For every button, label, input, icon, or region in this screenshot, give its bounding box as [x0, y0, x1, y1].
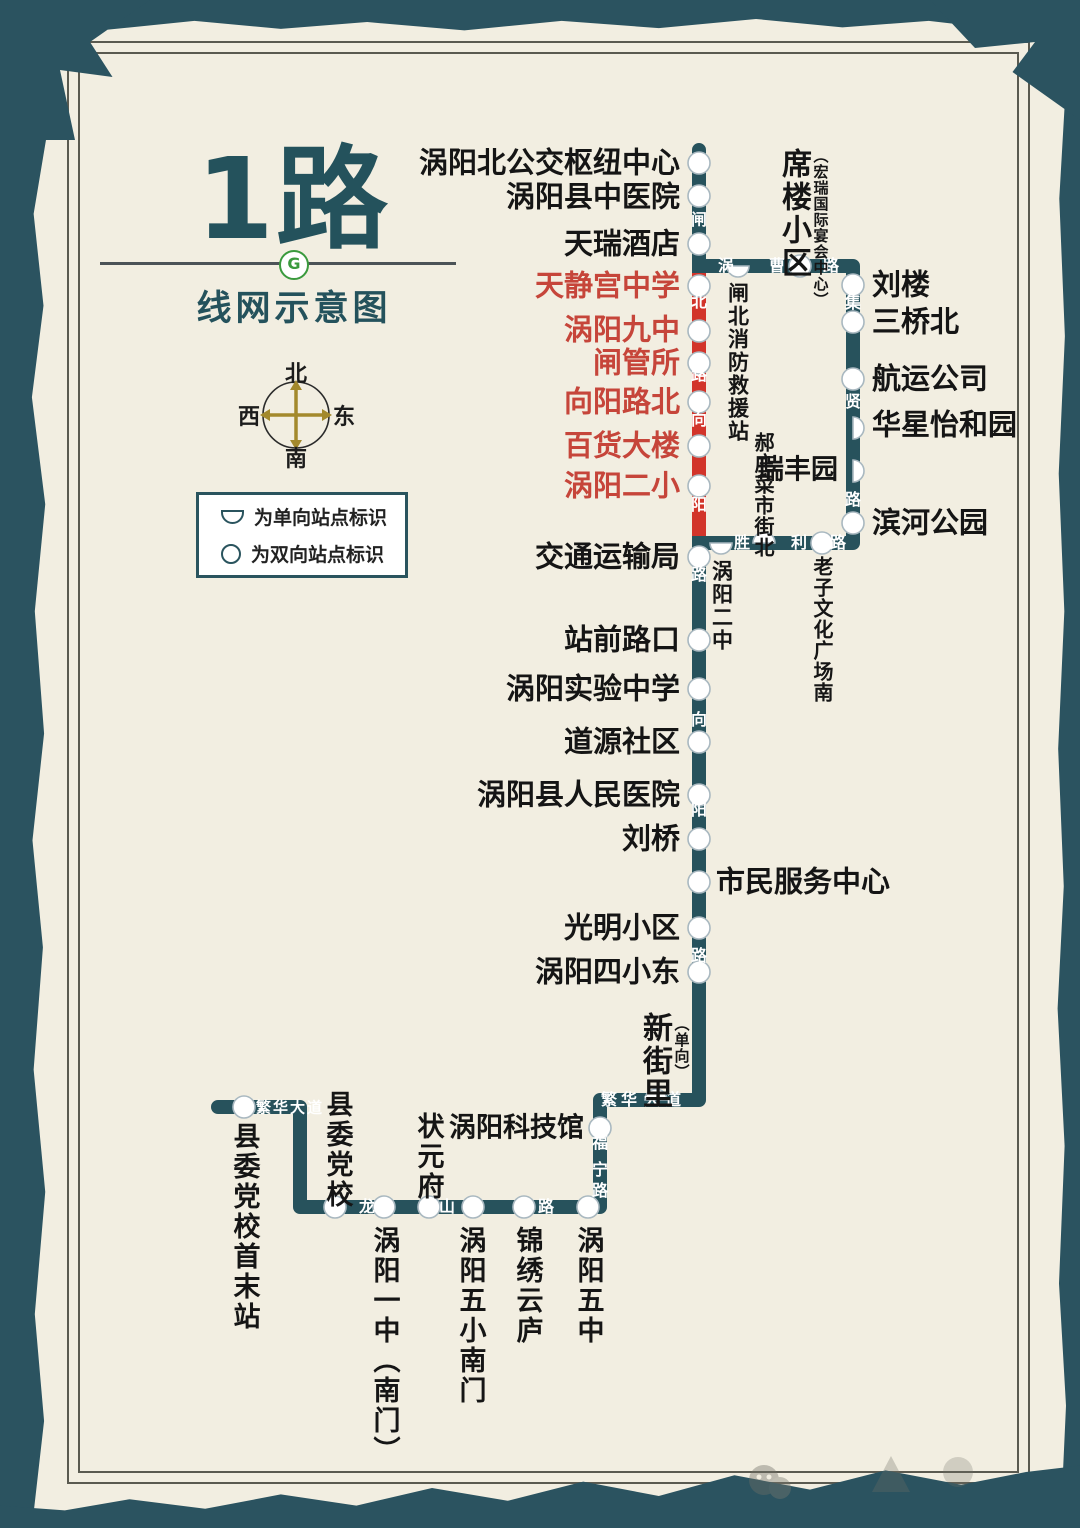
station-label-tianjinggong: 天静宫中学	[535, 272, 680, 301]
road-char: 胜	[734, 535, 750, 551]
road-char: 闸	[691, 212, 707, 228]
station-marker-shiyanzhongxue	[688, 678, 710, 700]
station-label-sixiaodong: 涡阳四小东	[535, 958, 680, 987]
road-char: 集	[845, 295, 861, 311]
station-label-baihuodalou: 百货大楼	[564, 432, 680, 461]
road-label-fanhua-terminus: 繁华大道	[256, 1097, 324, 1118]
watermark-shape-icon	[866, 1452, 916, 1496]
road-char: 宁	[592, 1162, 608, 1178]
road-char: 阳	[691, 802, 707, 818]
station-marker-shiminzhongxin	[688, 871, 710, 893]
station-label-zhaguansuo: 闸管所	[593, 349, 680, 378]
station-marker-hangyungongsi	[842, 368, 864, 390]
road-char: 路	[691, 567, 707, 583]
station-label-xilouxiaoqu: 席楼小区	[778, 148, 808, 280]
road-char: 向	[691, 712, 707, 728]
station-label-xianweidangxiao: 县委党校	[324, 1090, 351, 1210]
road-char: 路	[691, 948, 707, 964]
station-label-haozhuang: 郝庄菜市街北	[753, 432, 773, 558]
wechat-watermark-icon	[742, 1460, 802, 1506]
road-char: 路	[592, 1183, 608, 1199]
station-marker-erzhong	[710, 543, 732, 554]
station-label-zhongyiyuan: 涡阳县中医院	[506, 183, 680, 212]
station-marker-liuqiao	[688, 828, 710, 850]
road-char: 龙	[359, 1199, 375, 1215]
station-marker-zhanqianlukou	[688, 629, 710, 651]
station-label-liulou: 刘楼	[872, 271, 930, 300]
station-label-jiaotongju: 交通运输局	[535, 543, 680, 572]
station-label-shiyanzhongxue: 涡阳实验中学	[506, 675, 680, 704]
station-label-erzhong: 涡阳二中	[711, 560, 732, 652]
station-label-hub: 涡阳北公交枢纽中心	[419, 149, 680, 178]
road-char: 北	[691, 294, 707, 310]
station-marker-jinxiuyunlu	[513, 1196, 535, 1218]
road-char: 向	[691, 412, 707, 428]
station-marker-guangmingxiaoqu	[688, 917, 710, 939]
station-label-kejiguan: 涡阳科技馆	[449, 1115, 584, 1142]
station-label-xiangyanglubei: 向阳路北	[564, 388, 680, 417]
station-label-shoumozhan: 县委党校首末站	[231, 1122, 258, 1332]
station-label-jinxiuyunlu: 锦绣云庐	[514, 1226, 541, 1346]
station-label-xinjieli: 新街里	[639, 1012, 669, 1111]
road-char: 路	[830, 535, 846, 551]
station-label-renminyiyuan: 涡阳县人民医院	[477, 781, 680, 810]
station-label-shiminzhongxin: 市民服务中心	[716, 868, 890, 897]
station-label-tianrui: 天瑞酒店	[564, 230, 680, 259]
station-marker-ruifengyuan	[853, 460, 864, 482]
station-marker-yizhong	[373, 1196, 395, 1218]
road-char: 福	[592, 1135, 608, 1151]
station-label-binhegongyuan: 滨河公园	[872, 509, 988, 538]
station-label-zhanqianlukou: 站前路口	[564, 626, 680, 655]
watermark-blob-icon	[936, 1450, 980, 1494]
road-char: 涡	[718, 258, 734, 274]
poster: 1路 G 线网示意图 北 南 西 东 为单向站点标识 为双向站点标识	[0, 0, 1080, 1528]
station-label-daoyuanshequ: 道源社区	[564, 728, 680, 757]
station-marker-hub	[688, 152, 710, 174]
station-label-hangyungongsi: 航运公司	[872, 365, 988, 394]
station-label-xiaofangzhan: 闸北消防救援站	[727, 282, 748, 443]
station-label-jiuzhong: 涡阳九中	[564, 316, 680, 345]
station-label-wuxiaonanmen: 涡阳五小南门	[457, 1226, 484, 1406]
station-label-zhuangyuanfu: 状元府	[415, 1112, 442, 1202]
road-char: 阳	[691, 497, 707, 513]
station-marker-jiuzhong	[688, 320, 710, 342]
route-loop-line	[699, 266, 853, 543]
station-note-xinjieli: （单向）	[674, 1016, 689, 1080]
station-label-sanqiaobei: 三桥北	[872, 308, 959, 337]
station-marker-daoyuanshequ	[688, 731, 710, 753]
station-label-huaxingyiheyuan: 华星怡和园	[872, 411, 1017, 440]
station-label-liuqiao: 刘桥	[622, 825, 680, 854]
station-marker-zhongyiyuan	[688, 185, 710, 207]
road-char: 利	[791, 535, 807, 551]
station-label-wuzhong: 涡阳五中	[575, 1226, 602, 1346]
road-char: 路	[845, 492, 861, 508]
station-marker-wuxiaonanmen	[462, 1196, 484, 1218]
station-marker-sanqiaobei	[842, 311, 864, 333]
station-marker-tianrui	[688, 233, 710, 255]
station-label-guangmingxiaoqu: 光明小区	[564, 914, 680, 943]
station-marker-shoumozhan	[233, 1096, 255, 1118]
station-marker-binhegongyuan	[842, 512, 864, 534]
station-label-laozi: 老子文化广场南	[812, 556, 832, 703]
station-marker-huaxingyiheyuan	[853, 417, 864, 439]
road-char: 路	[538, 1199, 554, 1215]
road-char: 路	[691, 367, 707, 383]
road-char: 华	[621, 1092, 637, 1108]
station-label-yizhong: 涡阳一中（南门）	[371, 1226, 398, 1466]
station-note-xilou: （宏瑞国际宴会中心）	[813, 148, 828, 308]
station-label-erxiao: 涡阳二小	[564, 472, 680, 501]
station-marker-erxiao	[688, 475, 710, 497]
road-char: 贤	[845, 394, 861, 410]
road-char: 繁	[601, 1092, 617, 1108]
station-marker-baihuodalou	[688, 435, 710, 457]
